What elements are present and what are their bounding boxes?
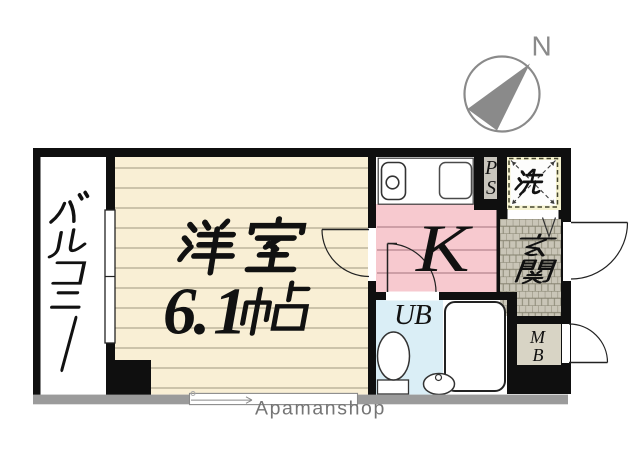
svg-text:6.1: 6.1 xyxy=(163,275,244,349)
svg-text:S: S xyxy=(486,177,496,199)
svg-text:K: K xyxy=(415,212,473,287)
svg-text:Apamanshop: Apamanshop xyxy=(255,398,386,420)
svg-text:N: N xyxy=(532,31,552,62)
svg-text:M: M xyxy=(529,327,546,347)
svg-text:B: B xyxy=(533,345,544,365)
svg-text:UB: UB xyxy=(394,299,432,331)
svg-text:P: P xyxy=(484,157,497,179)
